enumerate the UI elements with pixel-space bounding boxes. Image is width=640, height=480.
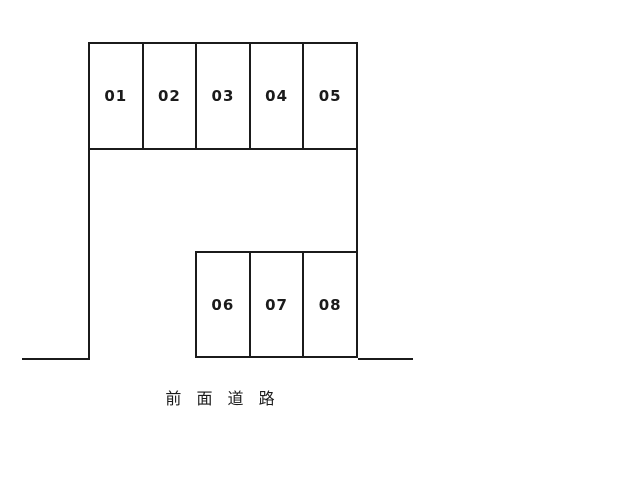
lot-boundary-left-line: [88, 150, 90, 360]
stall-label-03: 03: [212, 87, 235, 105]
stall-label-01: 01: [104, 87, 127, 105]
front-road-label: 前 面 道 路: [140, 385, 305, 409]
road-edge-line-left: [22, 358, 88, 360]
parking-stall-01: 01: [90, 44, 144, 148]
parking-row-bottom: 06 07 08: [195, 251, 358, 358]
parking-stall-06: 06: [197, 253, 251, 356]
parking-stall-08: 08: [304, 253, 356, 356]
stall-label-06: 06: [211, 296, 234, 314]
parking-stall-02: 02: [144, 44, 198, 148]
parking-stall-05: 05: [304, 44, 356, 148]
lot-boundary-right-line: [356, 150, 358, 251]
stall-label-04: 04: [265, 87, 288, 105]
road-edge-line-right: [358, 358, 413, 360]
parking-stall-03: 03: [197, 44, 251, 148]
stall-label-02: 02: [158, 87, 181, 105]
parking-stall-07: 07: [251, 253, 305, 356]
stall-label-08: 08: [319, 296, 342, 314]
stall-label-07: 07: [265, 296, 288, 314]
stall-label-05: 05: [319, 87, 342, 105]
parking-layout-diagram: 01 02 03 04 05 06 07 08 前 面 道 路: [0, 0, 640, 480]
parking-row-top: 01 02 03 04 05: [88, 42, 358, 150]
parking-stall-04: 04: [251, 44, 305, 148]
